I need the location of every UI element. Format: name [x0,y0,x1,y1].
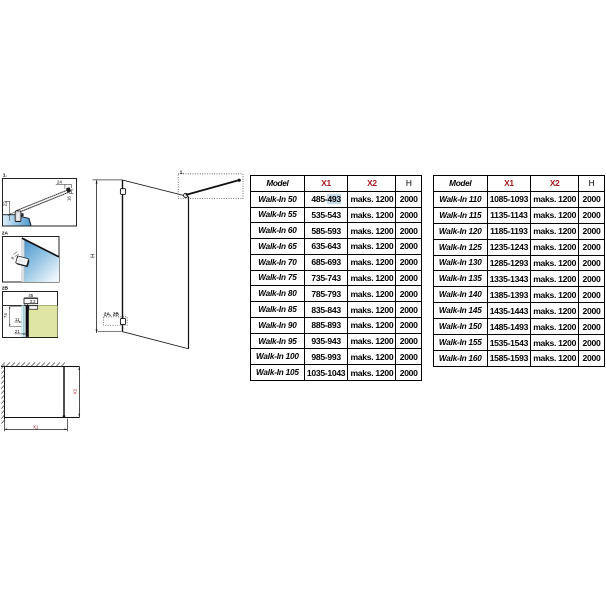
svg-text:X1: X1 [33,424,39,429]
svg-text:16: 16 [67,196,72,201]
svg-text:1.: 1. [180,169,184,174]
svg-text:74: 74 [3,313,8,318]
svg-text:22: 22 [3,201,8,206]
svg-text:3.2: 3.2 [30,299,37,304]
svg-text:X2: X2 [72,388,77,394]
svg-text:24: 24 [57,179,62,184]
svg-text:45: 45 [28,293,33,298]
svg-text:2B: 2B [2,286,9,292]
svg-text:2A, 2B: 2A, 2B [104,311,119,317]
svg-text:21: 21 [15,329,20,334]
svg-text:H: H [90,254,96,258]
svg-text:2A: 2A [2,231,9,237]
svg-text:1.: 1. [3,173,7,179]
svg-text:8: 8 [10,255,16,260]
